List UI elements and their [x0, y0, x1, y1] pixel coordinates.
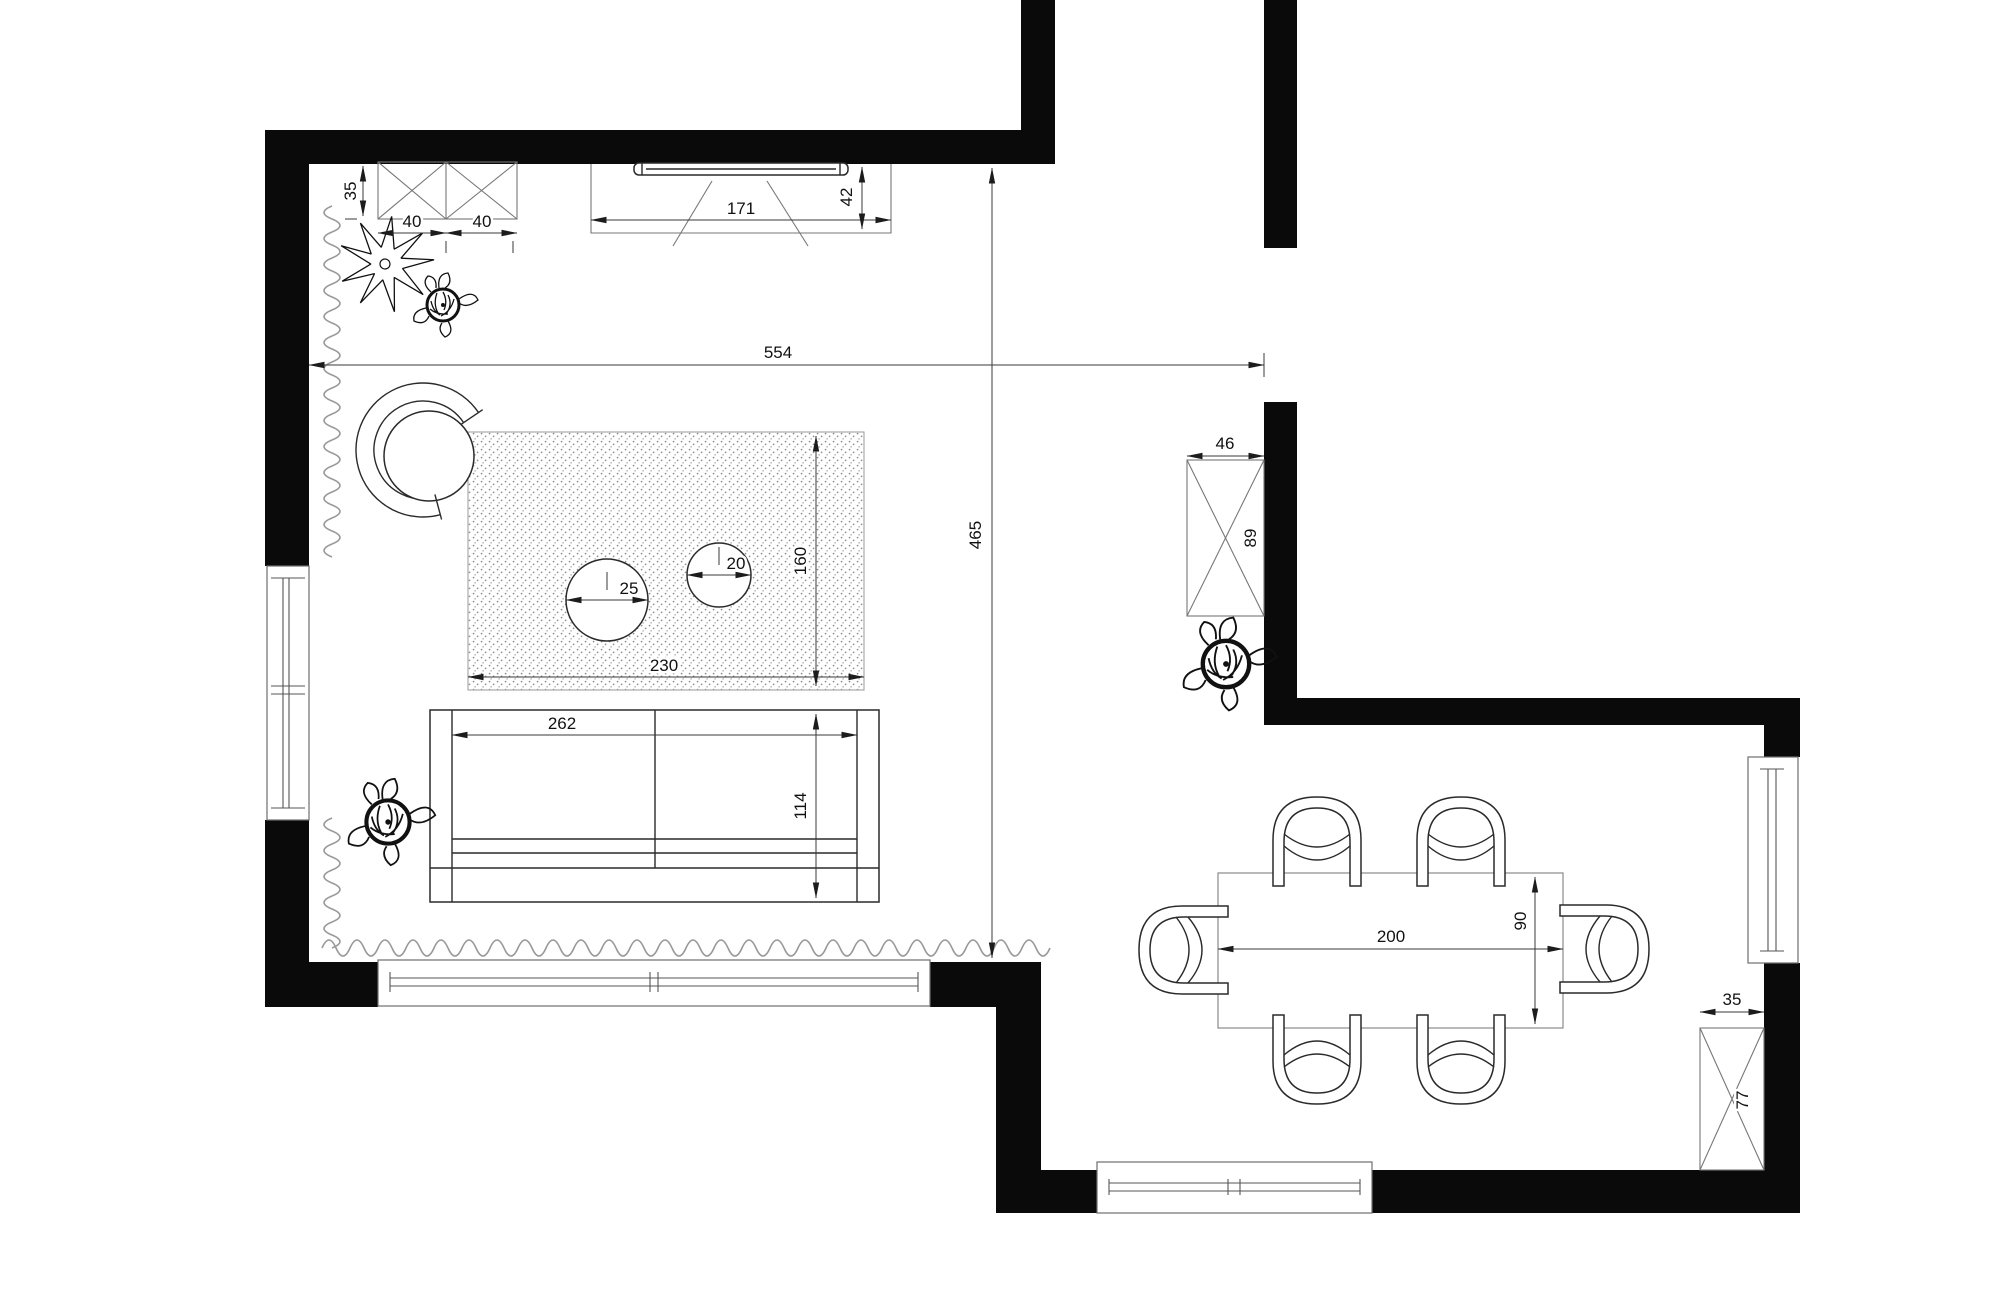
dining-chair-left — [1139, 906, 1228, 994]
floor-plan-page: 554 465 171 42 35 40 40 — [0, 0, 2000, 1300]
dim-label-35b: 35 — [1723, 990, 1742, 1009]
dim-label-465: 465 — [966, 521, 985, 549]
dining-room — [1139, 460, 1764, 1170]
dim-living-height: 465 — [966, 168, 992, 958]
curtain-bottom — [322, 940, 1050, 956]
wall-left-lower — [265, 820, 309, 1007]
dim-living-width: 554 — [309, 343, 1264, 377]
wall-living-bottom-right — [930, 962, 1041, 1007]
plant-star — [333, 210, 439, 316]
dim-label-89: 89 — [1241, 529, 1260, 548]
wall-cabinet — [378, 162, 517, 219]
plant-pot-2 — [349, 779, 436, 865]
dim-label-90: 90 — [1511, 912, 1530, 931]
wall-left-upper — [265, 130, 309, 566]
dim-label-46: 46 — [1216, 434, 1235, 453]
curtain-left-lower — [324, 818, 340, 948]
dim-cabinet-depth: 35 — [341, 166, 363, 219]
dim-label-554: 554 — [764, 343, 792, 362]
window-right — [1748, 757, 1798, 963]
dim-label-171: 171 — [727, 199, 755, 218]
living-room — [333, 162, 891, 902]
dim-label-114: 114 — [791, 792, 810, 819]
plant-pot-1 — [414, 273, 478, 337]
dim-label-230: 230 — [650, 656, 678, 675]
dim-label-40b: 40 — [473, 212, 492, 231]
dim-label-262: 262 — [548, 714, 576, 733]
window-dining-bottom — [1097, 1162, 1372, 1213]
window-living-bottom — [378, 960, 930, 1006]
wall-dining-top — [1264, 698, 1800, 725]
dim-hall-cabinet: 46 89 — [1187, 434, 1264, 547]
dim-label-42: 42 — [837, 188, 856, 207]
window-left — [267, 566, 309, 820]
dining-table — [1218, 873, 1563, 1028]
sofa — [430, 710, 879, 902]
dim-label-77: 77 — [1733, 1091, 1752, 1110]
wall-entry-left-stub — [1021, 0, 1055, 130]
curtain-left — [324, 206, 340, 557]
armchair — [356, 383, 483, 519]
dim-label-160: 160 — [791, 547, 810, 575]
plant-pot-3 — [1184, 618, 1277, 711]
wall-entry-right — [1264, 0, 1297, 248]
dim-label-200: 200 — [1377, 927, 1405, 946]
dining-chair-right — [1560, 905, 1649, 993]
dim-label-25: 25 — [620, 579, 639, 598]
floor-plan-canvas: 554 465 171 42 35 40 40 — [0, 0, 2000, 1300]
entry-cabinet — [1700, 1028, 1764, 1170]
dim-label-40a: 40 — [403, 212, 422, 231]
wall-top — [265, 130, 1055, 164]
dim-label-35a: 35 — [341, 182, 360, 201]
wall-right-upper — [1764, 725, 1800, 757]
dim-label-20: 20 — [727, 554, 746, 573]
